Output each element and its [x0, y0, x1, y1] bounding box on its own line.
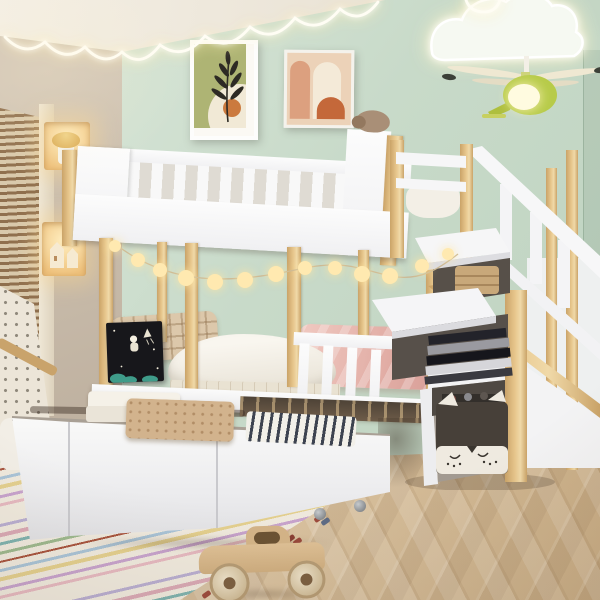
- drawer-caster: [354, 500, 366, 512]
- chalk-bushes: [110, 372, 158, 383]
- helicopter-skid: [482, 114, 506, 118]
- stairs-baluster: [558, 240, 570, 308]
- chalk-rocket: [143, 328, 151, 337]
- gate-rail: [396, 152, 466, 168]
- stair-shelf-books: [420, 328, 513, 385]
- cloud-night-light: [431, 0, 582, 60]
- ceiling-lights: [0, 0, 600, 140]
- drawer-caster: [314, 508, 326, 520]
- car-front-wheel: [287, 560, 326, 599]
- drawer-seam: [68, 422, 70, 536]
- wooden-toy-car: [194, 532, 336, 600]
- chalk-astronaut-head: [130, 335, 137, 342]
- garland-string: [115, 244, 458, 279]
- stairs-baluster: [530, 212, 542, 284]
- kids-bedroom-photo: [0, 0, 600, 600]
- fox-storage-bin: [436, 390, 508, 474]
- helicopter-lamp: [442, 56, 600, 118]
- car-seat-hole: [254, 531, 280, 544]
- striped-blanket: [245, 411, 356, 447]
- floral-quilt: [125, 398, 234, 442]
- chalk-astronaut-body: [130, 342, 138, 351]
- garland-globes: [109, 240, 454, 290]
- house-window: [54, 256, 57, 261]
- gate-rail: [396, 178, 466, 192]
- scallop-string-light: [5, 2, 378, 60]
- helicopter-cabin-light: [508, 84, 540, 110]
- chalkboard-drawing: [106, 321, 164, 383]
- chalk-rocket-trail: [147, 338, 154, 344]
- chalk-moon: [115, 340, 148, 366]
- chalkboard: [106, 321, 164, 383]
- stairs-front-post: [505, 290, 527, 482]
- storage-staircase: [370, 128, 600, 490]
- drawer-seam: [216, 429, 218, 528]
- fairy-light-garland: [90, 228, 470, 303]
